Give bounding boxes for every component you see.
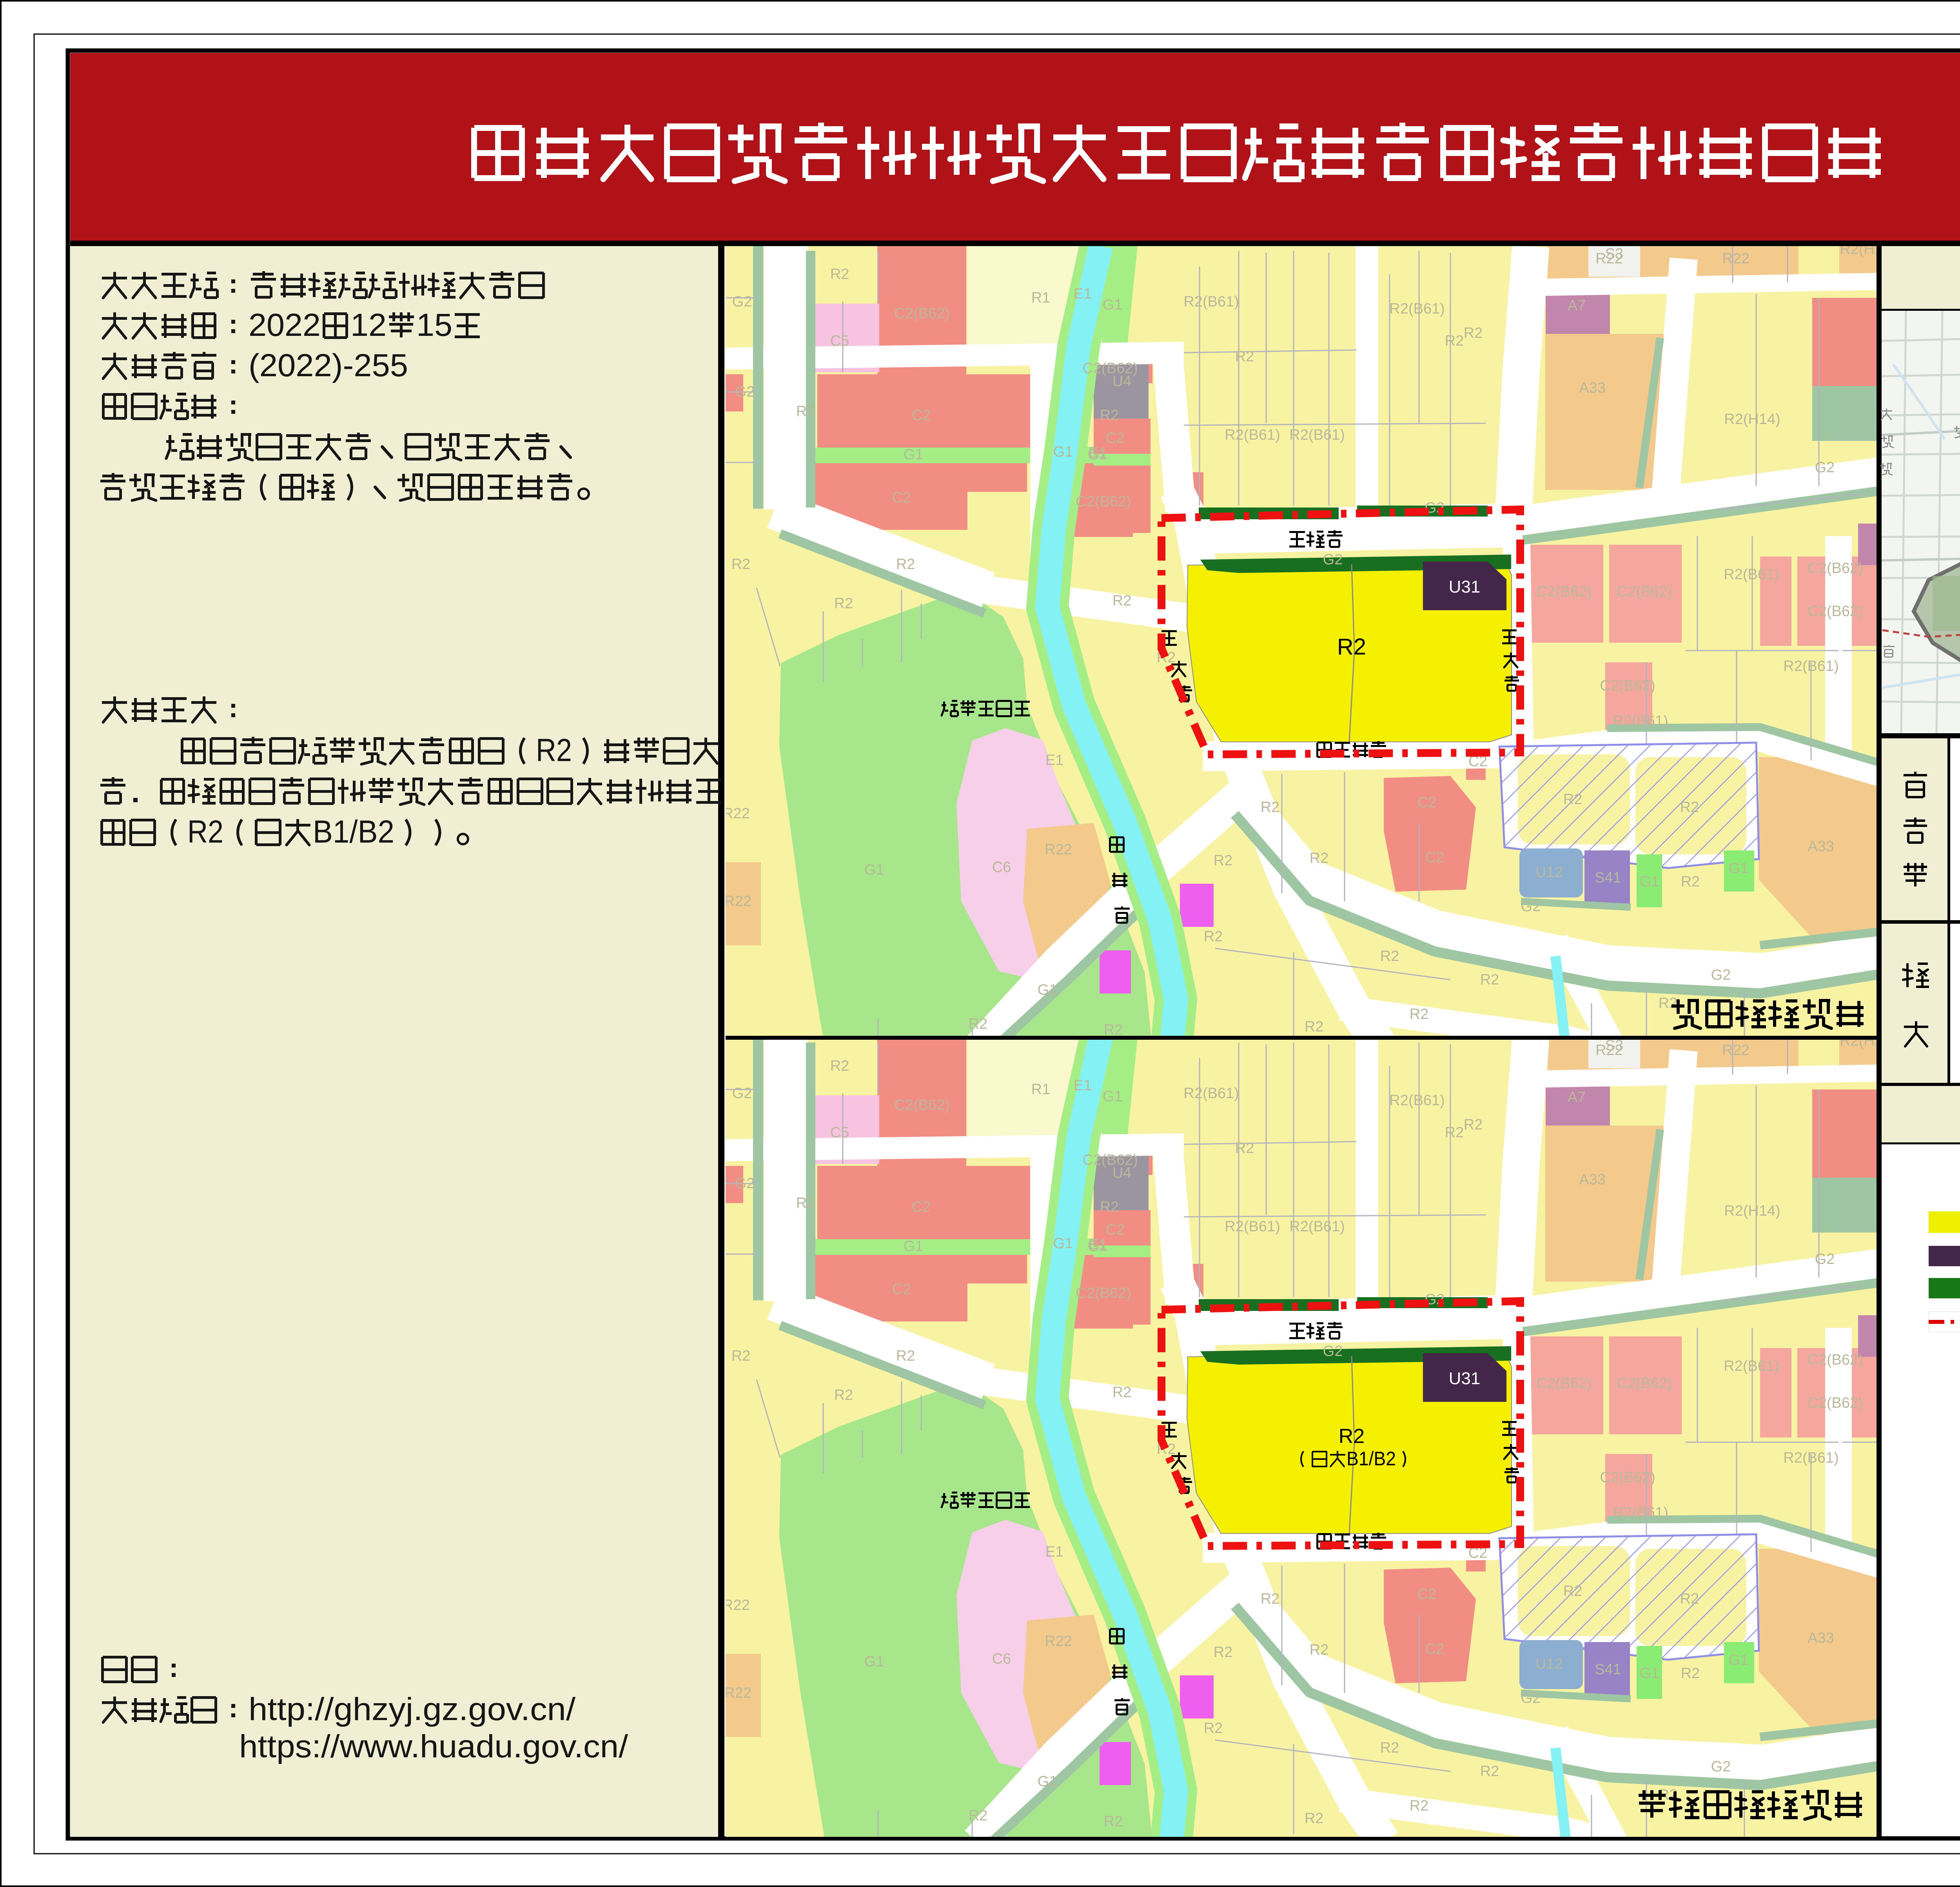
svg-text:https://www.huadu.gov.cn/: https://www.huadu.gov.cn/	[239, 1729, 628, 1764]
svg-text:B1/B2: B1/B2	[313, 814, 394, 850]
svg-text:R2: R2	[187, 814, 223, 850]
svg-text:2022: 2022	[249, 307, 321, 343]
svg-text:(2022)-255: (2022)-255	[249, 348, 408, 383]
svg-text:R2: R2	[1337, 634, 1366, 660]
svg-text:15: 15	[416, 307, 452, 343]
svg-text:12: 12	[350, 307, 387, 343]
svg-text:http://ghzyj.gz.gov.cn/: http://ghzyj.gz.gov.cn/	[249, 1691, 575, 1727]
svg-text:R2: R2	[1339, 1425, 1365, 1448]
svg-text:B1/B2: B1/B2	[1347, 1448, 1396, 1470]
svg-text:R2: R2	[536, 732, 572, 768]
